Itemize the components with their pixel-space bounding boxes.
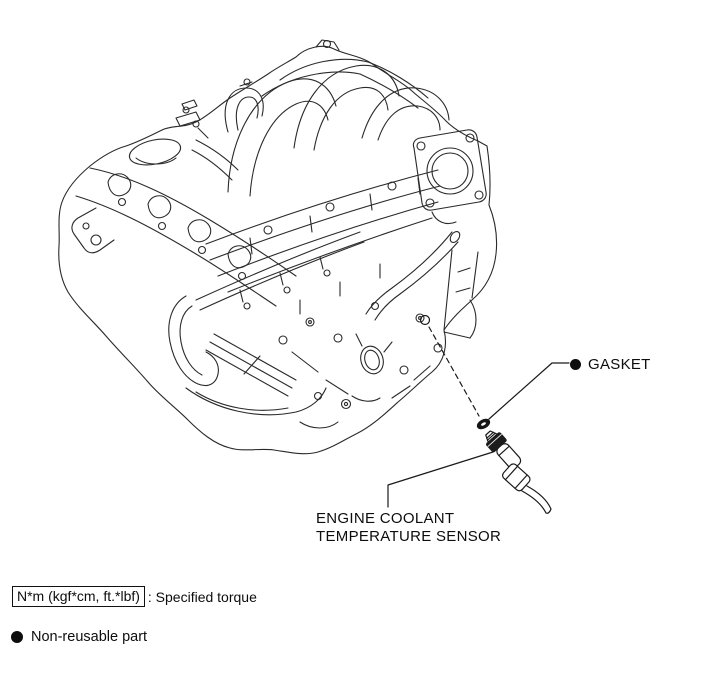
non-reusable-bullet-icon [570,359,581,370]
gasket-leader-line [489,363,569,419]
gasket-callout: GASKET [570,356,651,373]
non-reusable-legend-bullet-icon [11,631,23,643]
sensor-wire [522,486,551,513]
torque-spec-box: N*m (kgf*cm, ft.*lbf) [12,586,145,607]
gasket-label: GASKET [588,356,651,373]
connector-graphic [501,462,532,492]
torque-legend-text: : Specified torque [148,589,257,605]
engine-illustration [0,0,713,681]
torque-legend: N*m (kgf*cm, ft.*lbf) : Specified torque [12,586,257,607]
sensor-callout: ENGINE COOLANT TEMPERATURE SENSOR [316,510,501,546]
sensor-leader-line [388,452,493,507]
diagram-page: GASKET ENGINE COOLANT TEMPERATURE SENSOR… [0,0,713,681]
sensor-label-line2: TEMPERATURE SENSOR [316,528,501,546]
non-reusable-legend: Non-reusable part [11,629,147,645]
sensor-label-line1: ENGINE COOLANT [316,510,501,528]
sensor-graphic [481,427,524,472]
engine-line-art [59,40,497,454]
non-reusable-text: Non-reusable part [31,629,147,645]
